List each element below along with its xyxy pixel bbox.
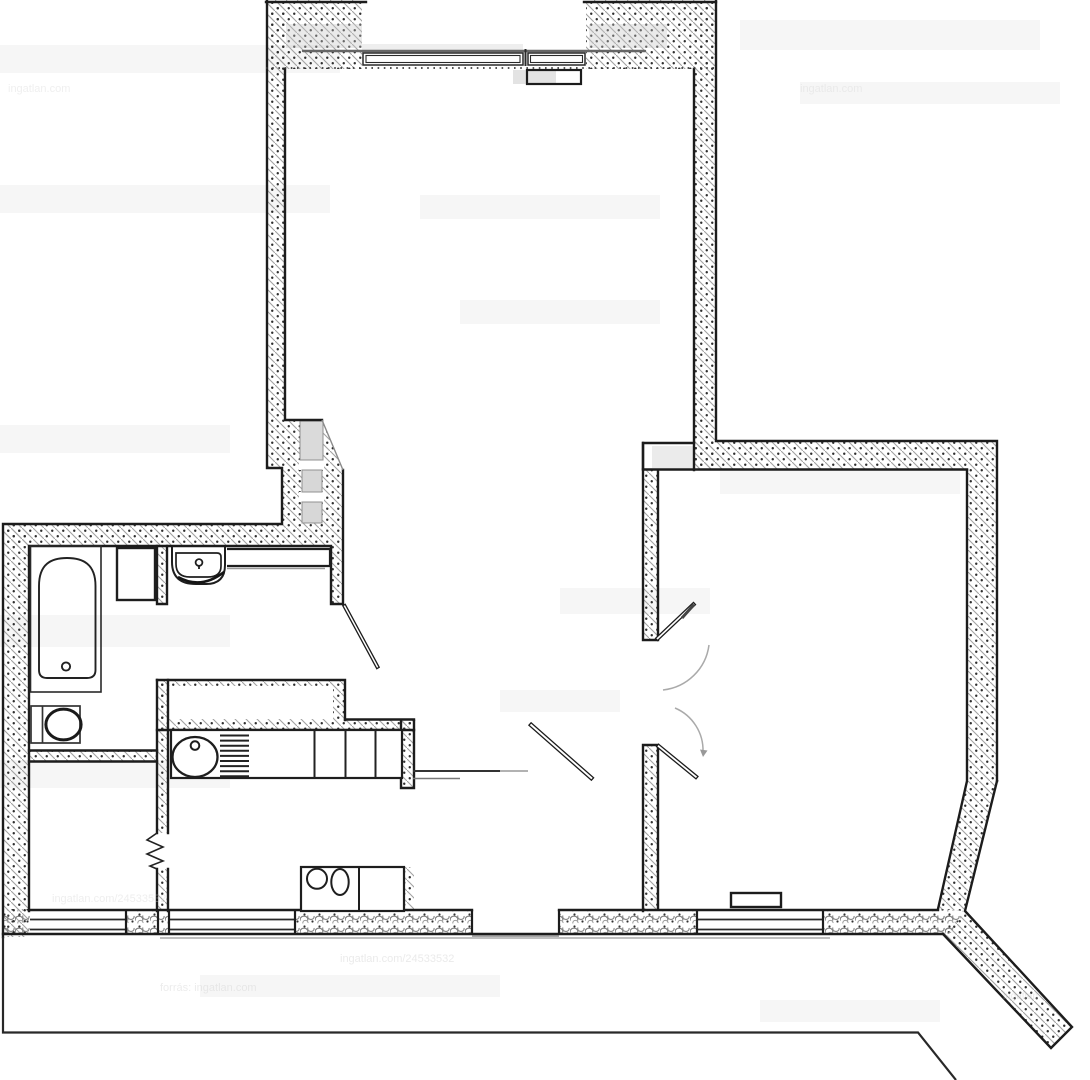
svg-text:ingatlan.com/24533532: ingatlan.com/24533532 — [52, 893, 166, 905]
svg-text:ingatlan: ingatlan — [1003, 991, 1038, 1002]
svg-text:ingatlan.com: ingatlan.com — [800, 83, 862, 95]
svg-text:ingatlan.com: ingatlan.com — [8, 83, 70, 95]
svg-text:ingatlan.com/24533532: ingatlan.com/24533532 — [340, 953, 454, 965]
svg-text:forrás: ingatlan.com: forrás: ingatlan.com — [160, 982, 257, 994]
